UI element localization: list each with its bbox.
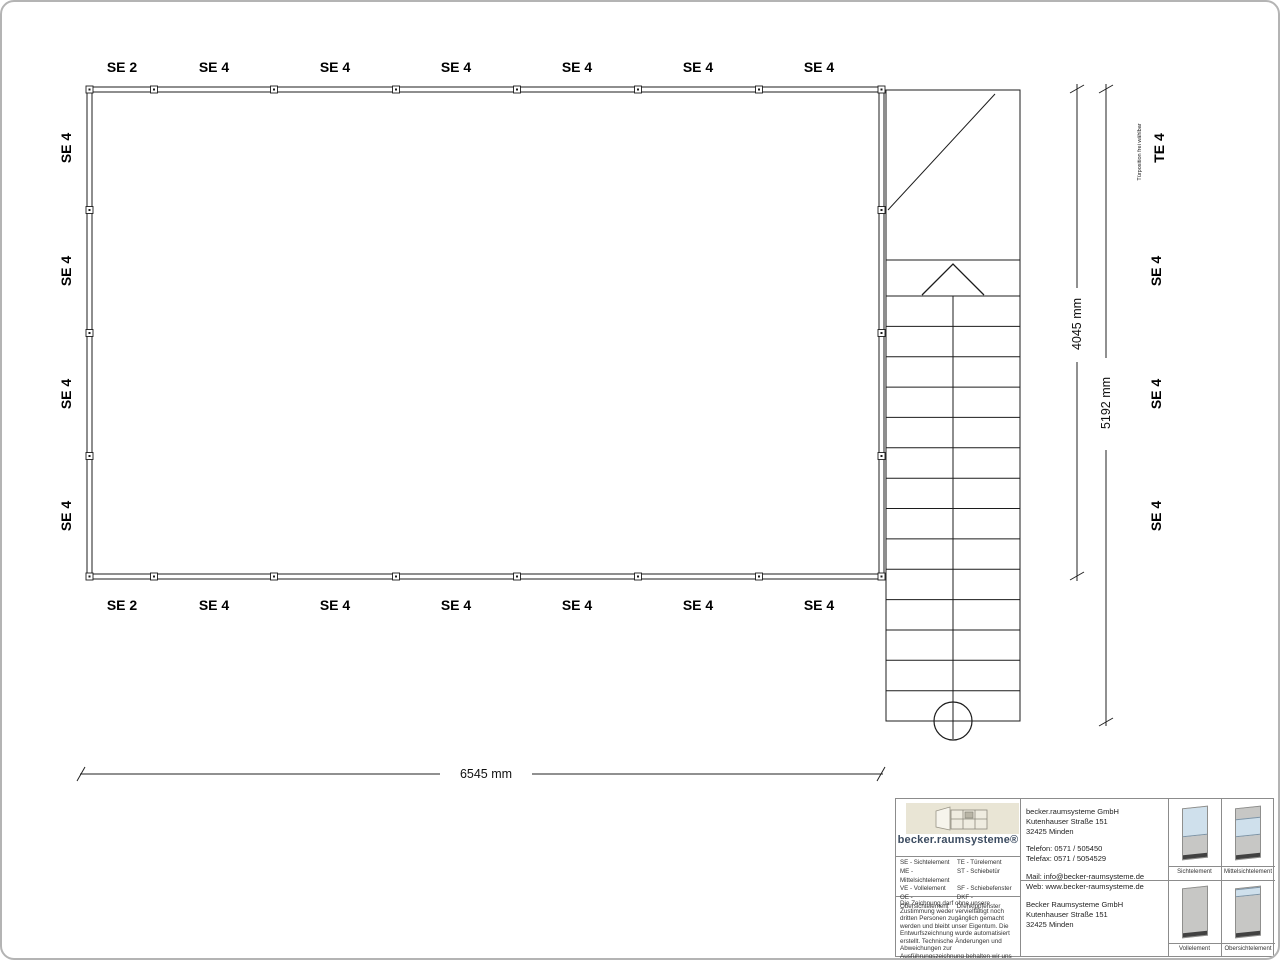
door-swing-line <box>888 94 995 210</box>
element-caption: Mittelsichtelement <box>1221 866 1275 879</box>
door-element-label: TE 4 <box>1151 133 1167 163</box>
element-caption: Sichtelement <box>1168 866 1221 879</box>
wall-element-label: SE 4 <box>58 379 74 409</box>
legend-item: VE - Vollelement <box>900 885 957 894</box>
stair-direction-arrow <box>922 264 984 295</box>
element-thumb-obersichtelement <box>1221 880 1275 943</box>
legend-item: ST - Schiebetür <box>957 868 1000 886</box>
wall-element-label: SE 2 <box>107 597 137 613</box>
company-logo-text: becker.raumsysteme® <box>896 834 1020 846</box>
legend-item: SE - Sichtelement <box>900 859 957 868</box>
wall-element-label: SE 4 <box>562 59 592 75</box>
wall-element-label: SE 4 <box>199 59 229 75</box>
website: Web: www.becker-raumsysteme.de <box>1026 882 1164 892</box>
dimension-width: 6545 mm <box>460 767 512 781</box>
element-thumb-sichtelement <box>1168 799 1221 866</box>
wall-element-label: SE 4 <box>58 256 74 286</box>
staircase <box>886 90 1020 740</box>
element-thumb-vollelement <box>1168 880 1221 943</box>
wall-element-label: SE 4 <box>1148 379 1164 409</box>
wall-element-label: SE 4 <box>58 133 74 163</box>
wall-element-label: SE 4 <box>562 597 592 613</box>
client-address-block: Becker Raumsysteme GmbH Kutenhauser Stra… <box>1026 900 1164 929</box>
wall-element-label: SE 4 <box>1148 256 1164 286</box>
legend-row: ME - Mittelsichtelement ST - Schiebetür <box>900 868 1018 886</box>
company-name: becker.raumsysteme GmbH <box>1026 807 1164 817</box>
divider <box>896 856 1020 857</box>
phone: Telefon: 0571 / 505450 <box>1026 844 1164 854</box>
legend-item: SF - Schiebefenster <box>957 885 1012 894</box>
legend-row: VE - Vollelement SF - Schiebefenster <box>900 885 1018 894</box>
city: 32425 Minden <box>1026 827 1164 837</box>
legend-item: TE - Türelement <box>957 859 1002 868</box>
title-block: becker.raumsysteme® SE - Sichtelement TE… <box>895 798 1274 957</box>
company-address-block: becker.raumsysteme GmbH Kutenhauser Stra… <box>1026 807 1164 891</box>
wall-element-label: SE 4 <box>1148 501 1164 531</box>
wall-element-label: SE 4 <box>199 597 229 613</box>
wall-element-label: SE 4 <box>804 597 834 613</box>
element-caption: Vollelement <box>1168 943 1221 956</box>
street: Kutenhauser Straße 151 <box>1026 910 1164 920</box>
door-position-note: Türposition frei wählbar <box>1137 123 1143 180</box>
wall-connectors <box>86 86 885 580</box>
dimension-height-total: 5192 mm <box>1099 377 1113 429</box>
wall-element-label: SE 4 <box>441 597 471 613</box>
logo-room-sketch <box>906 803 1019 834</box>
fax: Telefax: 0571 / 5054529 <box>1026 854 1164 864</box>
element-caption: Obersichtelement <box>1221 943 1275 956</box>
wall-element-label: SE 4 <box>58 501 74 531</box>
drawing-sheet: SE 2 SE 4 SE 4 SE 4 SE 4 SE 4 SE 4 SE 2 … <box>0 0 1280 960</box>
legend-item: ME - Mittelsichtelement <box>900 868 957 886</box>
dimension-lines <box>77 84 1113 781</box>
wall-element-label: SE 4 <box>441 59 471 75</box>
wall-element-label: SE 4 <box>683 597 713 613</box>
divider <box>1020 799 1021 956</box>
wall-element-label: SE 4 <box>683 59 713 75</box>
wall-element-label: SE 2 <box>107 59 137 75</box>
email: Mail: info@becker-raumsysteme.de <box>1026 872 1164 882</box>
wall-element-label: SE 4 <box>320 597 350 613</box>
wall-element-label: SE 4 <box>320 59 350 75</box>
dimension-height-room: 4045 mm <box>1070 298 1084 350</box>
street: Kutenhauser Straße 151 <box>1026 817 1164 827</box>
city: 32425 Minden <box>1026 920 1164 930</box>
element-thumb-mittelsichtelement <box>1221 799 1275 866</box>
room-walls <box>87 87 884 579</box>
company-logo <box>906 803 1019 834</box>
copyright-notice: Die Zeichnung darf ohne unsere Zustimmun… <box>900 900 1017 960</box>
legend-row: SE - Sichtelement TE - Türelement <box>900 859 1018 868</box>
wall-element-label: SE 4 <box>804 59 834 75</box>
company-name: Becker Raumsysteme GmbH <box>1026 900 1164 910</box>
